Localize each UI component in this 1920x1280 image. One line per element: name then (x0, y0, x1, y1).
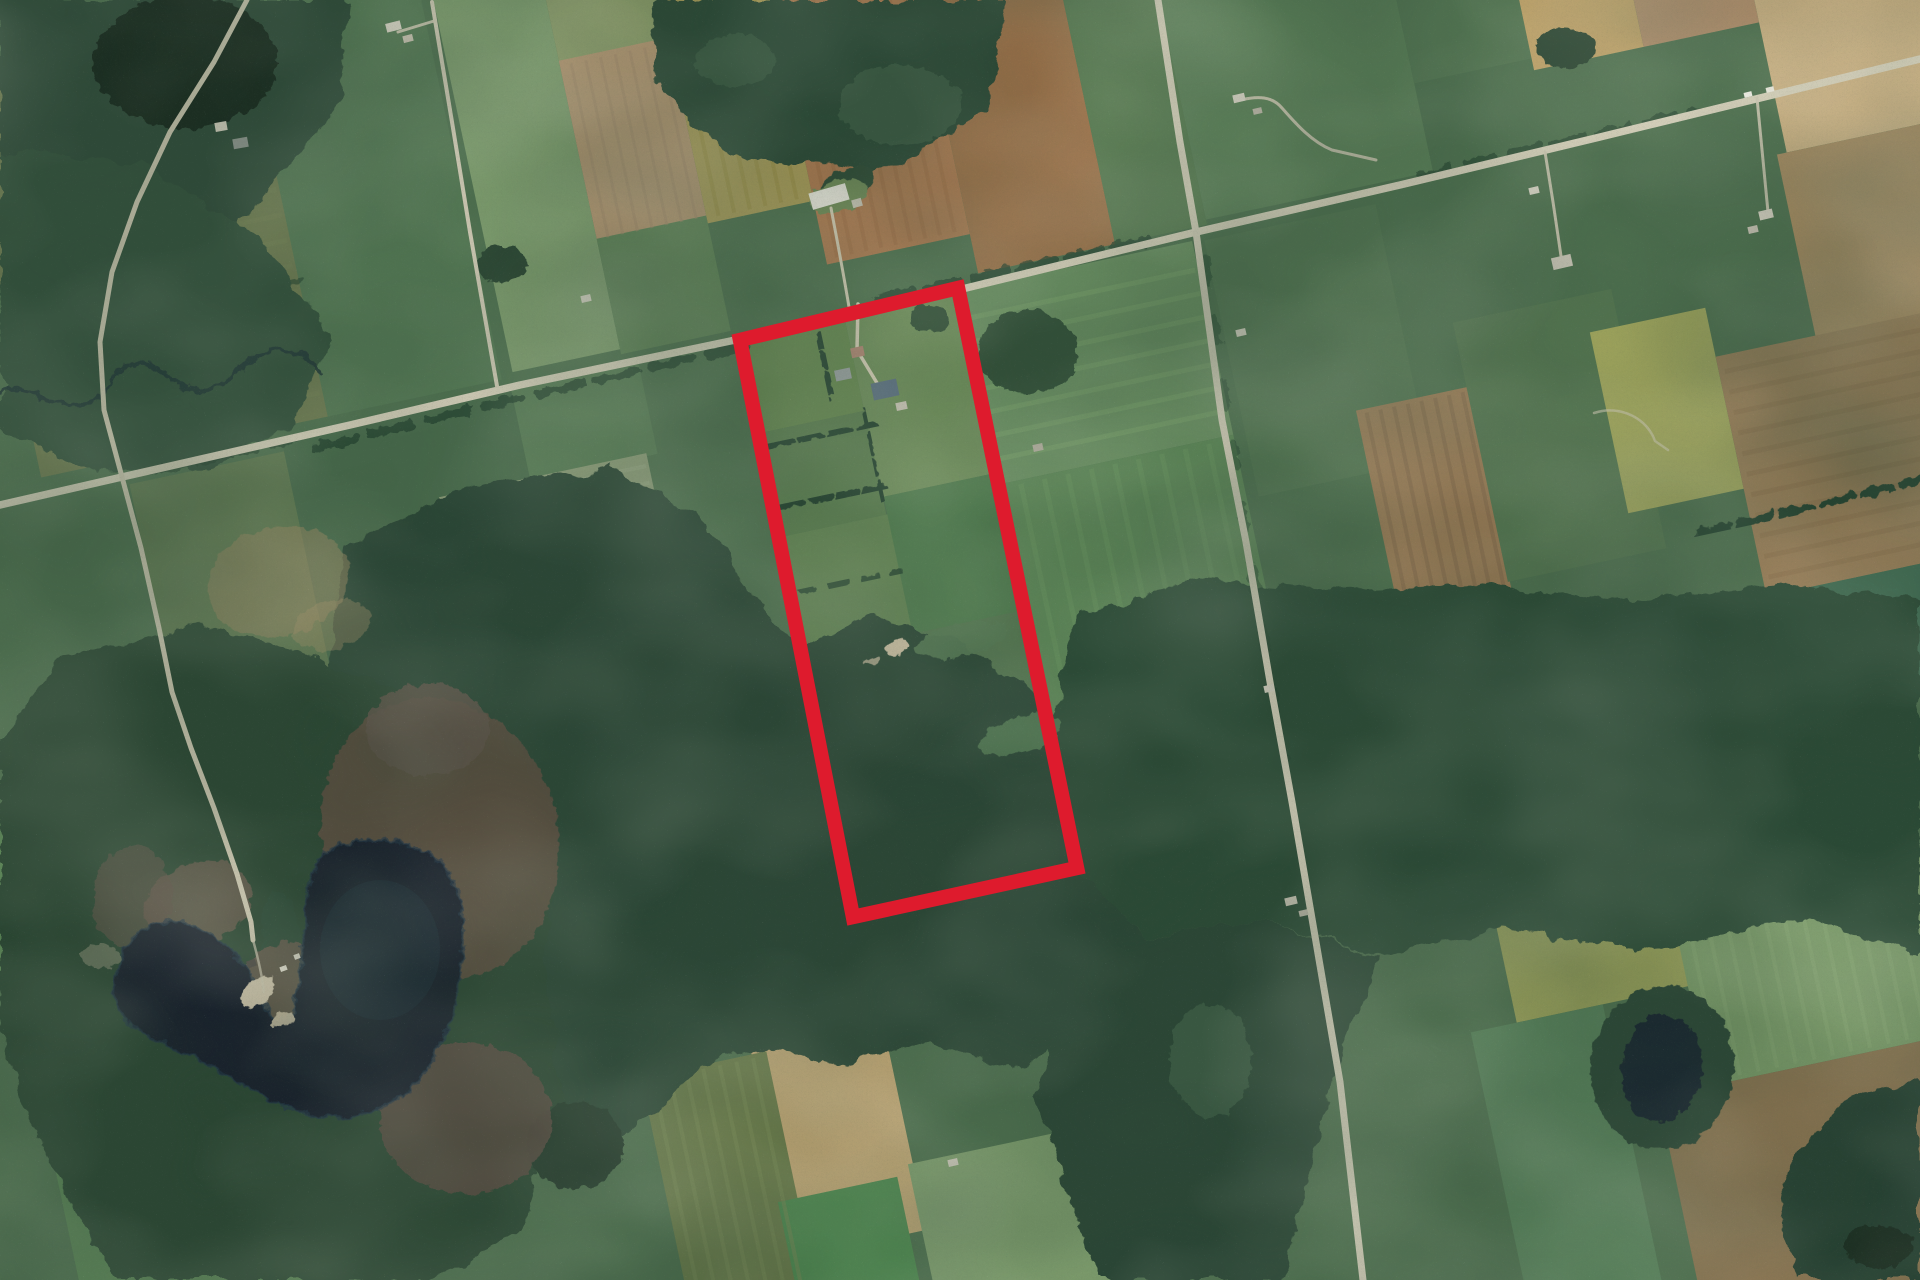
grain-light-overlay (0, 0, 1920, 1280)
satellite-image (0, 0, 1920, 1280)
satellite-map (0, 0, 1920, 1280)
